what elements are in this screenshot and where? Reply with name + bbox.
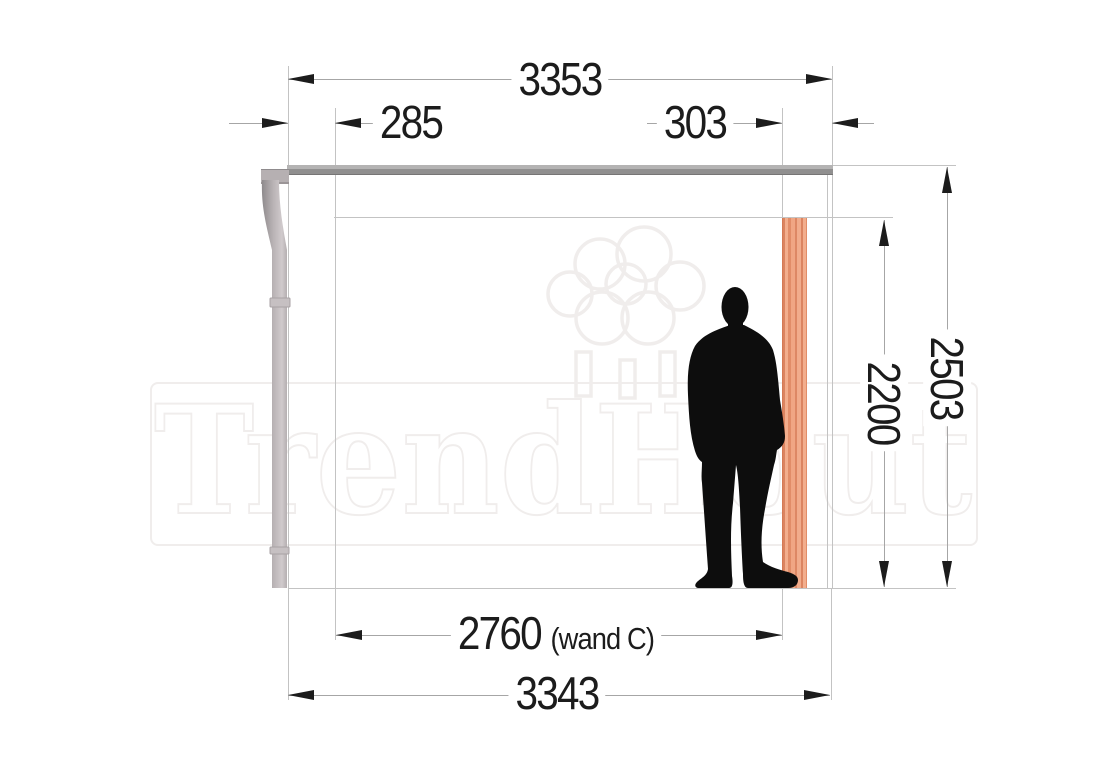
dim-left-offset-arrow-left [262,118,288,128]
dim-left-offset-label: 285 [373,98,449,146]
downpipe-collar [270,298,290,307]
dim-wall-width-note: (wand C) [550,621,654,656]
dim-base-width-arrow-right [804,690,830,700]
wall-left-inner-line [335,108,336,640]
extension-line-post-top [782,108,783,218]
dim-clear-height-label: 2200 [860,354,908,451]
dim-base-width-arrow-left [288,690,314,700]
dim-right-offset-arrow-right [832,118,858,128]
beam-underside-line [334,217,893,218]
dim-total-height-label: 2503 [923,329,971,426]
dim-right-offset-label: 303 [657,98,733,146]
wall-right-inner-line [827,173,828,588]
dim-total-height-arrow-top [942,167,952,193]
dim-roof-width-arrow-left [288,74,314,84]
person-body [688,325,798,588]
roof-edge-beam [287,165,833,175]
dim-wall-width-arrow-right [756,630,782,640]
extension-line-right-bottom [831,588,832,700]
dim-total-height-arrow-bottom [942,561,952,587]
dim-roof-width-label: 3353 [511,55,608,103]
gutter-downpipe [258,166,294,590]
dim-left-offset-arrow-right [335,118,361,128]
dim-clear-height-arrow-bottom [879,561,889,587]
downpipe-bend [262,180,287,588]
dim-base-width-label: 3343 [508,669,605,717]
ground-line [288,588,956,589]
dim-roof-width-arrow-right [806,74,832,84]
dim-wall-width-arrow-left [336,630,362,640]
downpipe-coupling [270,547,289,554]
roof-top-extension-line [833,165,956,166]
dim-clear-height-arrow-top [879,220,889,246]
dim-right-offset-arrow-left [756,118,782,128]
elevation-drawing-canvas: TrendHout 3353 [0,0,1120,770]
dim-wall-width-label: 2760 (wand C) [451,609,661,657]
dim-wall-width-value: 2760 [458,607,541,659]
person-silhouette [686,285,802,588]
extension-line-post-bottom [782,588,783,640]
wall-right-edge-line [832,66,833,588]
